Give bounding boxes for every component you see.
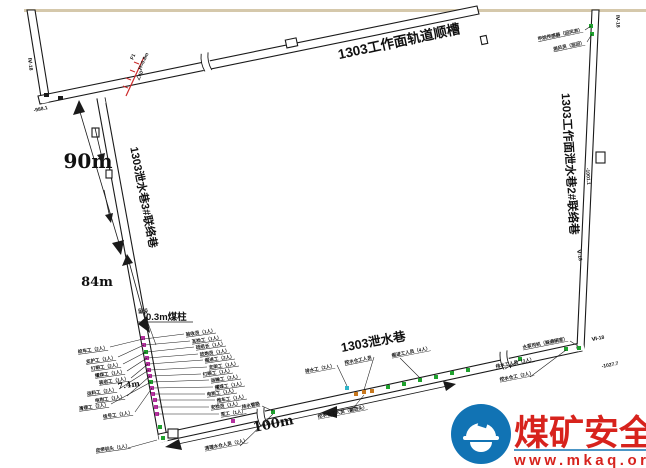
- pump-team-marker: [370, 389, 374, 393]
- leader-line: [145, 341, 190, 345]
- leader-line: [123, 352, 146, 364]
- worker-label: 信号工（1人）: [102, 409, 133, 420]
- elevation-east: -1001.1: [584, 168, 591, 186]
- tunnel-north-stub: [27, 10, 49, 97]
- label-left-branch: 1303泄水巷3#联络巷: [127, 145, 161, 249]
- survivor-marker: [564, 347, 568, 351]
- survey-point-east: Ⅴ-18: [575, 249, 583, 261]
- survey-point-se: Ⅵ-18: [591, 335, 605, 343]
- elevation-se: -1027.7: [601, 361, 619, 370]
- leader-line: [128, 440, 157, 448]
- worker-label: 绞车工（2人）: [77, 344, 108, 355]
- tunnel-track-gateway: [38, 6, 479, 104]
- dim-84m-label: 84m: [81, 275, 113, 290]
- watermark-site-url: www.mkaq.org: [513, 452, 646, 468]
- route-arrow: [104, 190, 110, 218]
- door-mark: [44, 93, 49, 97]
- survivor-marker: [434, 375, 438, 379]
- elevation-nw: -988.1: [33, 105, 48, 114]
- page-top-border: [24, 9, 646, 12]
- survivor-marker: [402, 382, 406, 386]
- junction-eraser: [97, 96, 105, 104]
- watermark-site-name: 煤矿安全网: [514, 413, 646, 453]
- survivor-marker: [577, 346, 581, 350]
- worker-labels-right: 验收员（1人） 瓦检工（1人） 班组长（1人） 放炮员（1人） 掘进工（2人） …: [185, 327, 247, 418]
- survivor-marker: [161, 436, 165, 440]
- survivor-marker: [418, 378, 422, 382]
- survey-point-nw: Ⅳ-18: [26, 58, 34, 72]
- corner-pillar: [168, 429, 178, 438]
- leader-line: [151, 374, 201, 376]
- survivor-marker: [450, 371, 454, 375]
- sensor-label: 甲烷传感器（回风流）: [537, 26, 583, 42]
- label-right-branch: 1303工作面泄水巷2#联络巷: [559, 93, 582, 236]
- equipment-box: [480, 35, 488, 44]
- leader-line: [153, 387, 213, 388]
- fault-name: F1: [129, 53, 137, 61]
- mkaq-logo-icon: [451, 404, 511, 464]
- worker-label: 清理工（2人）: [78, 401, 109, 412]
- survivor-marker: [466, 368, 470, 372]
- niche-track-gateway: [285, 38, 297, 48]
- leader-line: [337, 365, 347, 386]
- victim-marker: [231, 419, 235, 423]
- dim-90m-label: 90m: [64, 149, 113, 173]
- worker-label: 掘进工人员（4人）: [391, 345, 431, 359]
- pillar-note-text: 0.3m煤柱: [146, 311, 187, 323]
- leader-line: [364, 357, 374, 390]
- survivor-marker: [386, 385, 390, 389]
- leader-line: [127, 358, 147, 371]
- diagram-canvas: F1 H=0.8m ∠40° 90m 84m 100m 7.4m 留设 0.3m…: [0, 0, 646, 468]
- survivor-marker: [158, 425, 162, 429]
- leader-line: [135, 388, 152, 412]
- leader-line: [150, 367, 207, 370]
- leader-line: [152, 380, 209, 382]
- worker-label: 皮带机头（1人）: [95, 442, 130, 454]
- worker-label: 挖水仓工（2人）: [499, 369, 534, 382]
- leader-line: [110, 339, 143, 347]
- door-mark: [58, 96, 63, 100]
- worker-label: 排水工（2人）: [304, 362, 335, 375]
- leader-line: [148, 354, 198, 358]
- leader-line: [400, 358, 420, 378]
- watermark: 煤矿安全网 www.mkaq.org: [451, 404, 646, 468]
- worker-label: 挖水仓工人员: [344, 354, 373, 366]
- leader-line: [149, 360, 203, 364]
- mine-roadway-diagram: F1 H=0.8m ∠40° 90m 84m 100m 7.4m 留设 0.3m…: [0, 0, 646, 468]
- survey-point-ne: Ⅳ-18: [614, 15, 621, 28]
- pump-team-marker: [354, 392, 358, 396]
- fault-throw: H=0.8m: [137, 52, 150, 71]
- leader-lines: [110, 26, 592, 448]
- leader-line: [147, 347, 194, 352]
- leader-line: [144, 334, 184, 339]
- route-arrowhead: [105, 213, 113, 223]
- pump-team-marker: [362, 390, 366, 394]
- niche-right-branch: [596, 152, 605, 163]
- label-drain-gateway: 1303泄水巷: [340, 328, 407, 355]
- sensor-marker: [345, 386, 349, 390]
- sensor-label: 测风员（巡回）: [552, 39, 585, 53]
